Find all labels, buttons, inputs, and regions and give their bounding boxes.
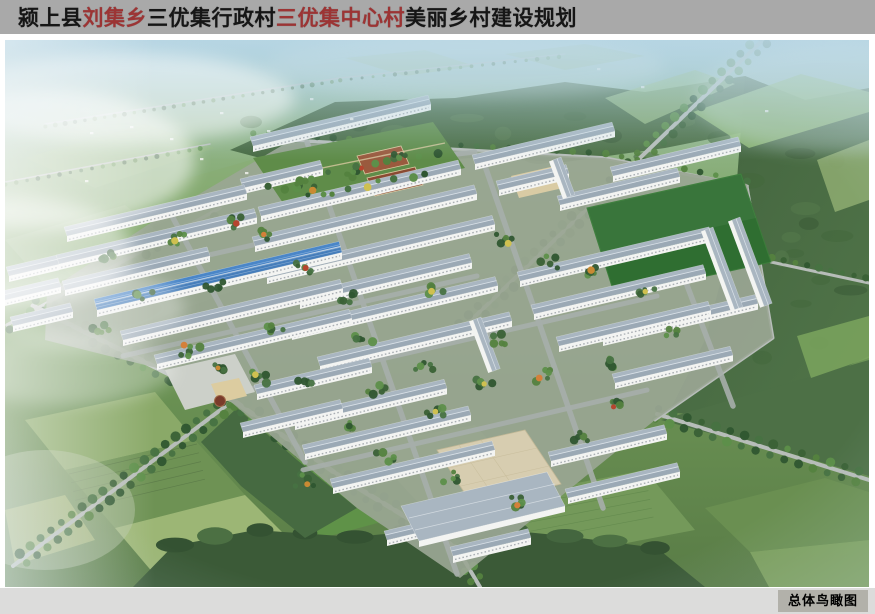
title-segment-1: 颍上县	[18, 7, 83, 30]
caption-bar: 总体鸟瞰图	[0, 588, 875, 614]
aerial-render-view	[5, 40, 869, 587]
plan-board: 颍上县刘集乡三优集行政村三优集中心村美丽乡村建设规划	[0, 0, 875, 614]
caption-badge: 总体鸟瞰图	[778, 590, 868, 612]
title-bar: 颍上县刘集乡三优集行政村三优集中心村美丽乡村建设规划	[0, 0, 875, 34]
aerial-render-svg	[5, 40, 869, 587]
page-title: 颍上县刘集乡三优集行政村三优集中心村美丽乡村建设规划	[18, 2, 577, 32]
scene-root	[5, 40, 869, 587]
title-segment-4: 三优集中心村	[276, 7, 405, 30]
title-segment-2: 刘集乡	[83, 7, 148, 30]
caption-label: 总体鸟瞰图	[788, 593, 858, 608]
title-segment-5: 美丽乡村建设规划	[405, 7, 577, 30]
title-segment-3: 三优集行政村	[147, 7, 276, 30]
